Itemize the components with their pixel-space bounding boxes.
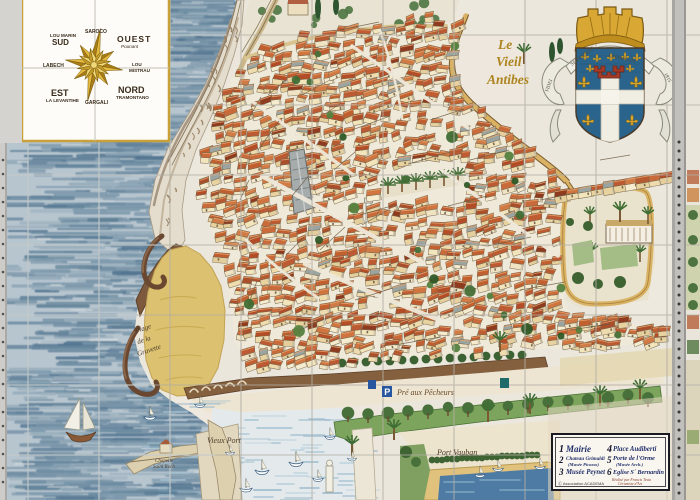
svg-text:Vieux Port: Vieux Port <box>207 436 242 445</box>
svg-text:LABECH: LABECH <box>43 63 64 69</box>
svg-text:SAROCO: SAROCO <box>85 29 107 35</box>
svg-text:GARGALI: GARGALI <box>85 100 109 106</box>
svg-text:Chapelle: Chapelle <box>155 459 174 464</box>
svg-text:3: 3 <box>558 467 564 477</box>
svg-text:LOU: LOU <box>132 62 142 67</box>
svg-text:6: 6 <box>607 467 612 477</box>
svg-text:Place Audiberti: Place Audiberti <box>613 446 656 453</box>
svg-text:Pounant: Pounant <box>121 44 139 49</box>
svg-text:(Musée Arch.): (Musée Arch.) <box>616 462 644 467</box>
svg-text:Antibes: Antibes <box>486 72 529 87</box>
svg-text:Ⓒ Association ACADEMA: Ⓒ Association ACADEMA <box>558 480 604 486</box>
svg-text:Saint Roch: Saint Roch <box>153 465 175 470</box>
svg-text:Mairie: Mairie <box>565 444 591 454</box>
svg-text:P: P <box>384 387 390 397</box>
svg-text:NORD: NORD <box>118 85 145 95</box>
svg-text:1: 1 <box>559 444 564 455</box>
svg-text:Musée Peynet: Musée Peynet <box>565 469 606 476</box>
svg-text:Pré aux Pêcheurs: Pré aux Pêcheurs <box>396 388 454 397</box>
svg-text:TRAMONTANO: TRAMONTANO <box>116 95 149 100</box>
svg-text:Le: Le <box>497 37 512 52</box>
svg-text:LA LEVANTIHE: LA LEVANTIHE <box>46 98 79 103</box>
svg-text:Eglise S´ Bernardin: Eglise S´ Bernardin <box>612 469 664 476</box>
svg-text:Porte de l'Orme: Porte de l'Orme <box>613 455 655 462</box>
svg-text:4: 4 <box>606 444 612 455</box>
svg-text:OUEST: OUEST <box>117 34 151 44</box>
svg-text:SUD: SUD <box>52 38 69 47</box>
svg-text:EST: EST <box>51 88 69 98</box>
svg-text:MISTRAU: MISTRAU <box>129 68 151 73</box>
svg-text:Céramiste d'Art: Céramiste d'Art <box>618 482 643 486</box>
svg-text:2: 2 <box>558 455 564 465</box>
svg-text:Port Vauban: Port Vauban <box>436 448 477 457</box>
svg-text:Vieil: Vieil <box>496 54 522 69</box>
svg-text:(Musée Picasso): (Musée Picasso) <box>568 462 599 467</box>
svg-text:5: 5 <box>607 455 612 465</box>
